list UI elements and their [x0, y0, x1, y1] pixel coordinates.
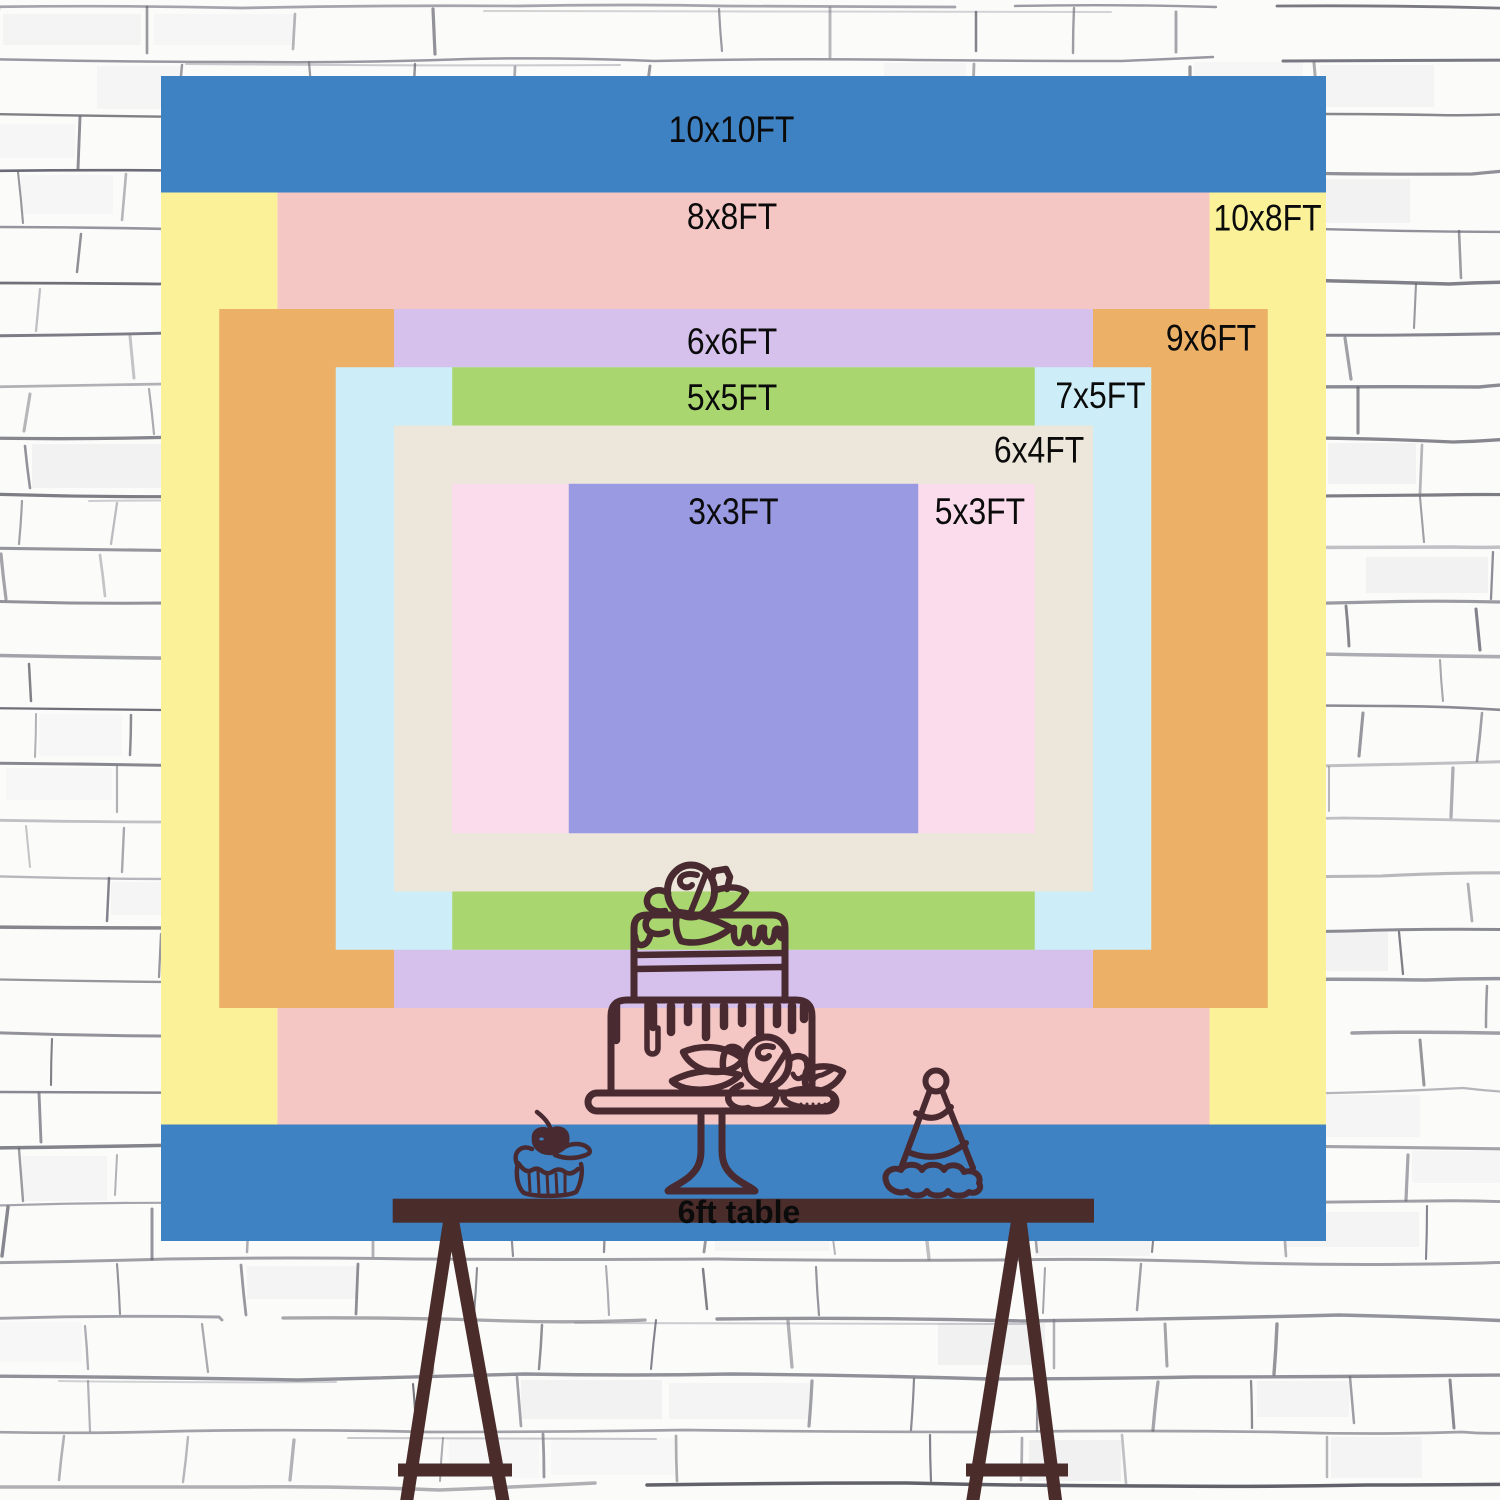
- svg-text:10x8FT: 10x8FT: [1213, 197, 1321, 239]
- svg-text:10x10FT: 10x10FT: [669, 109, 795, 151]
- svg-text:6x6FT: 6x6FT: [687, 321, 777, 363]
- svg-text:9x6FT: 9x6FT: [1166, 317, 1256, 359]
- svg-text:6ft table: 6ft table: [678, 1194, 801, 1230]
- svg-text:3x3FT: 3x3FT: [688, 491, 778, 533]
- svg-text:5x3FT: 5x3FT: [935, 491, 1025, 533]
- svg-text:6x4FT: 6x4FT: [994, 429, 1084, 471]
- svg-text:7x5FT: 7x5FT: [1055, 375, 1145, 417]
- svg-text:8x8FT: 8x8FT: [687, 196, 777, 238]
- svg-text:5x5FT: 5x5FT: [687, 377, 777, 419]
